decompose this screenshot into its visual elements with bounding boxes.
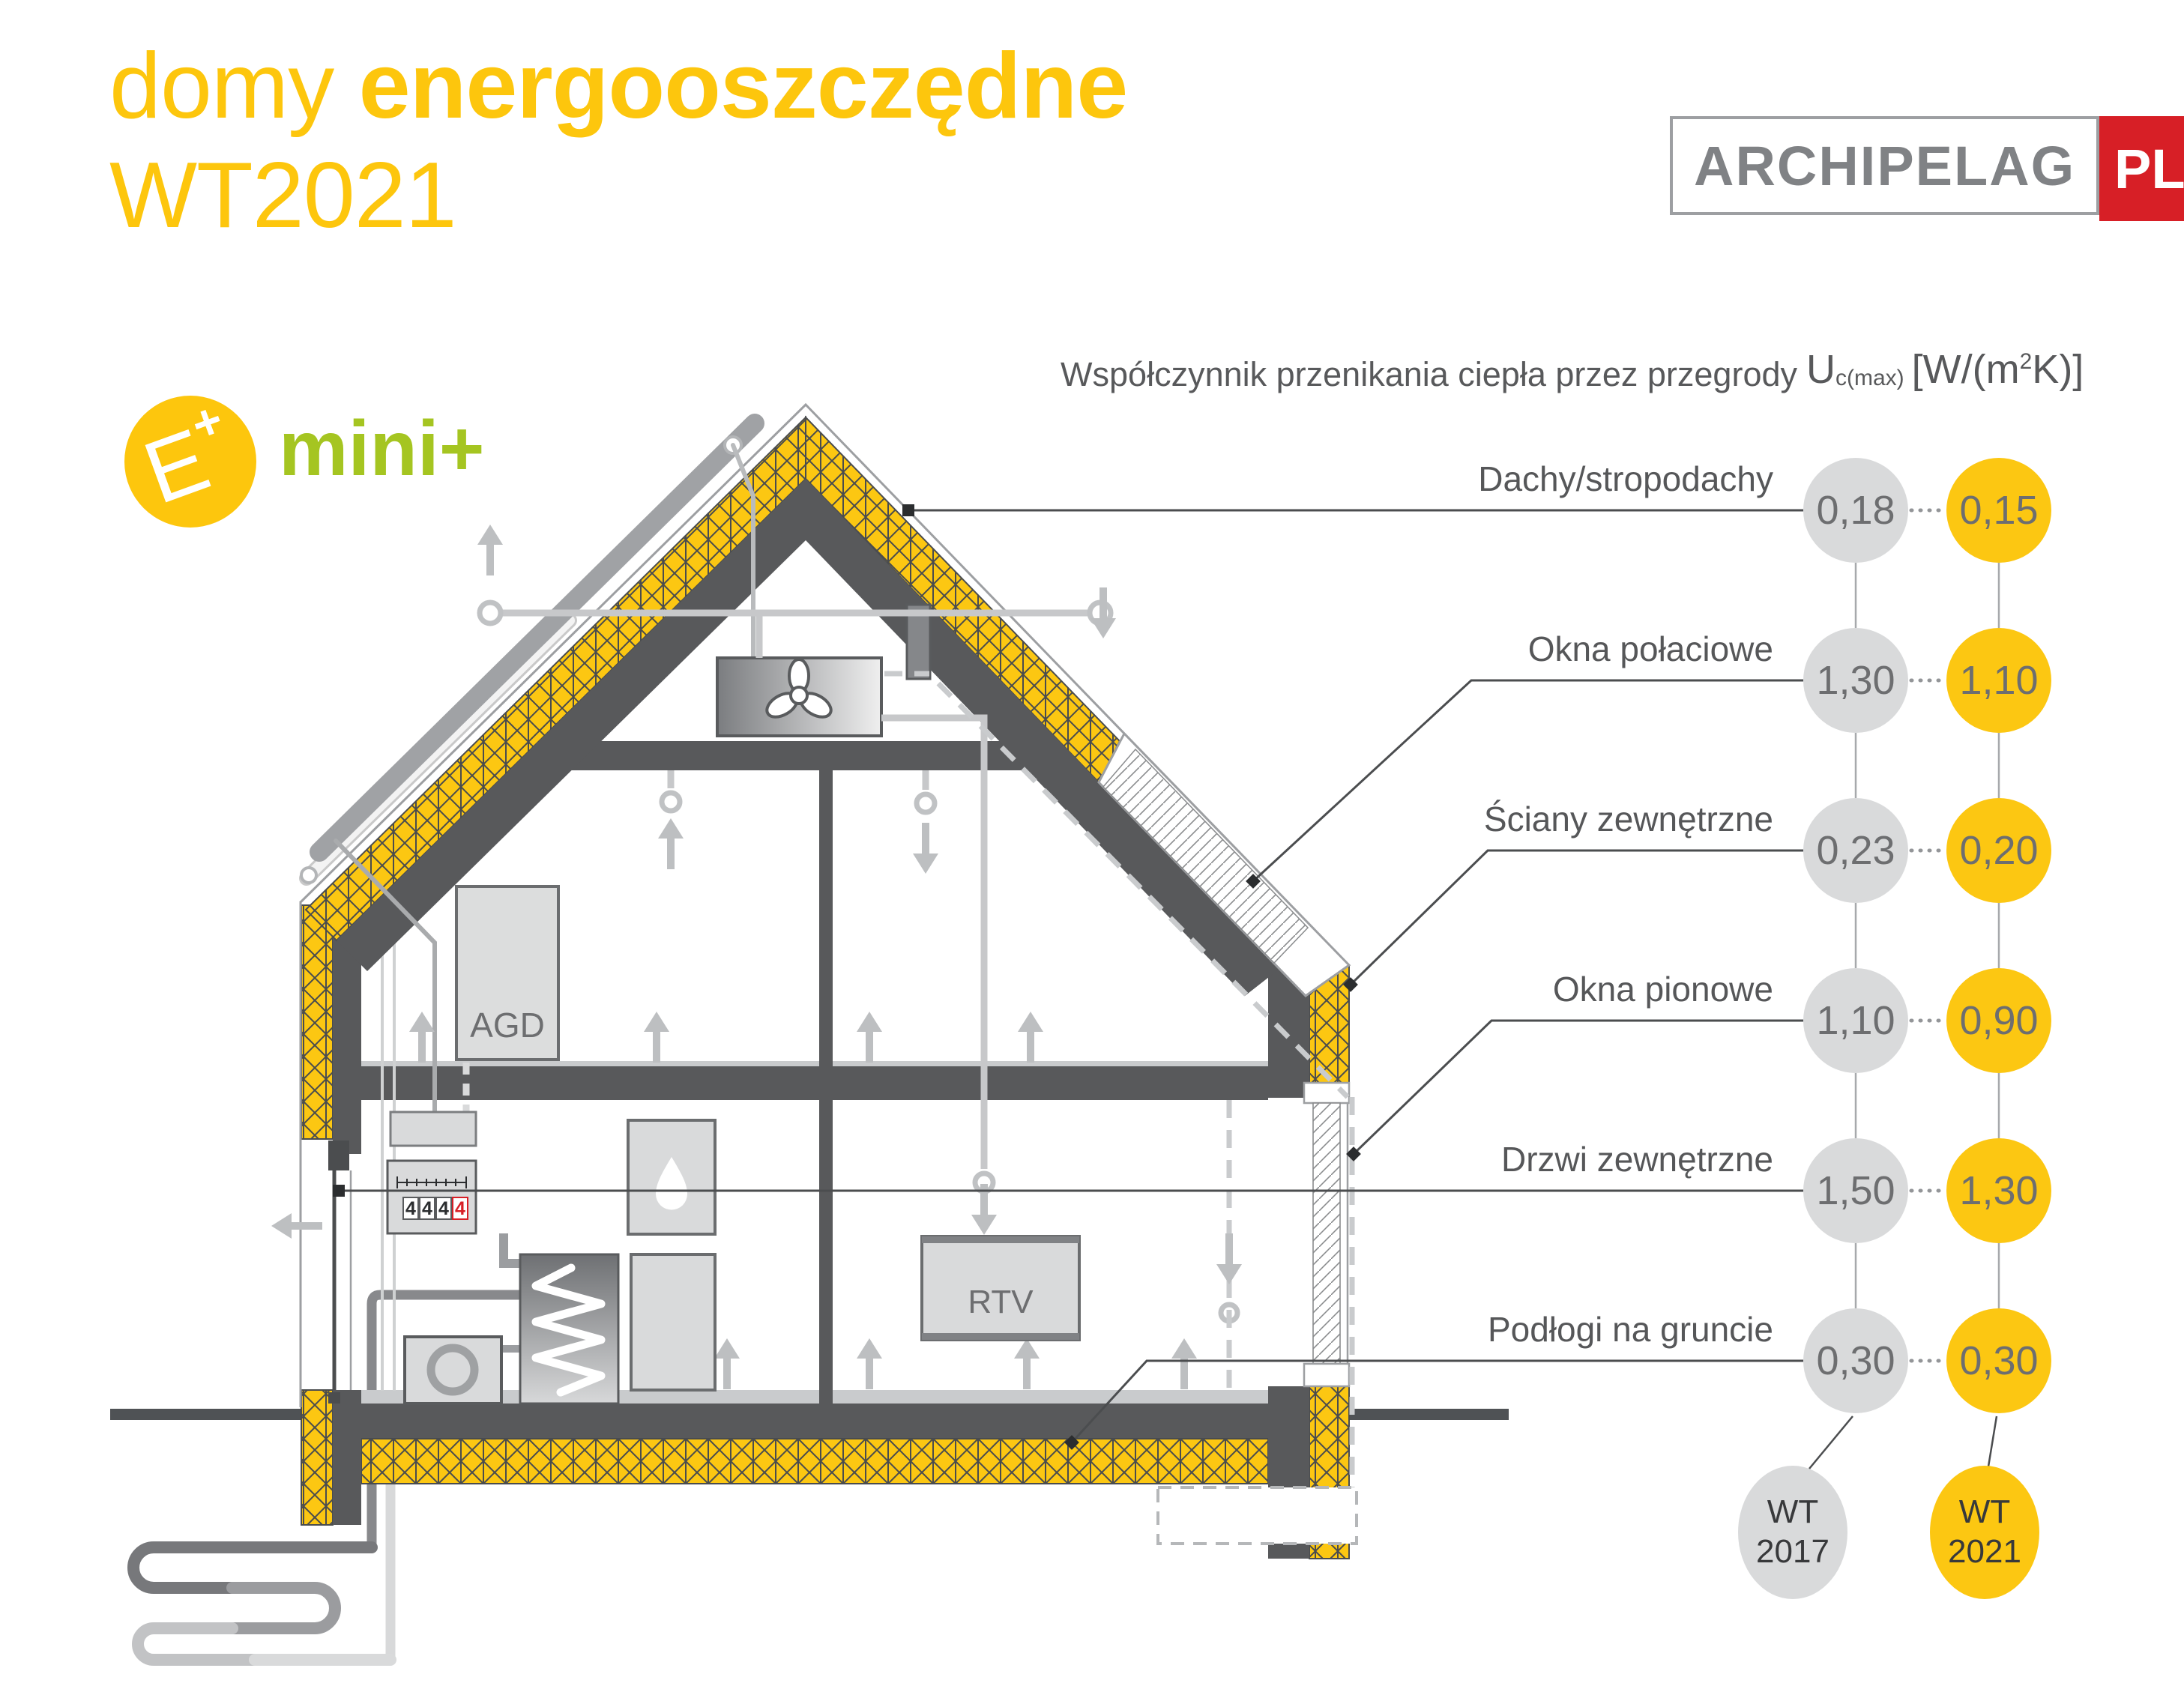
- interior-wall: [819, 770, 833, 1404]
- cabinet: [631, 1254, 715, 1390]
- value-wt2021-okna-polaciowe: 1,10: [1946, 628, 2051, 733]
- legend-wt2021: WT 2021: [1930, 1466, 2039, 1599]
- row-label-dachy: Dachy/stropodachy: [1478, 459, 1773, 498]
- row-label-drzwi: Drzwi zewnętrzne: [1501, 1140, 1773, 1179]
- e-plus-badge: E+: [124, 396, 256, 528]
- fuse-box: [390, 1112, 476, 1146]
- floor-insulation: [361, 1439, 1268, 1484]
- svg-text:4: 4: [455, 1198, 465, 1219]
- heat-recovery-unit: [717, 658, 881, 736]
- heat-pump-unit: [405, 1337, 501, 1404]
- ground-heat-exchanger: [1158, 1487, 1357, 1544]
- value-dotted-links: [1911, 510, 1946, 1361]
- value-wt2021-podlogi: 0,30: [1946, 1308, 2051, 1413]
- title-bold: energooszczędne: [359, 34, 1128, 138]
- svg-text:4: 4: [405, 1198, 416, 1219]
- header-label: Współczynnik przenikania ciepła przez pr…: [1061, 355, 1797, 394]
- water-heater: [628, 1120, 715, 1234]
- infographic-canvas: AGD RTV 4 4 4 4: [0, 0, 2184, 1695]
- u-symbol: U: [1806, 346, 1835, 393]
- value-wt2021-dachy: 0,15: [1946, 458, 2051, 563]
- value-wt2021-okna-pionowe: 0,90: [1946, 968, 2051, 1073]
- brand-name-box: ARCHIPELAG: [1670, 116, 2099, 215]
- energy-meter: 4 4 4 4: [387, 1161, 476, 1233]
- value-wt2021-drzwi: 1,30: [1946, 1138, 2051, 1243]
- title-light: domy: [109, 34, 334, 138]
- value-wt2017-drzwi: 1,50: [1803, 1138, 1908, 1243]
- archipelag-logo[interactable]: ARCHIPELAG PL: [1670, 116, 2184, 221]
- value-wt2017-dachy: 0,18: [1803, 458, 1908, 563]
- mini-plus-label: mini+: [279, 405, 485, 494]
- appliances: AGD RTV 4 4 4 4: [387, 886, 1079, 1404]
- agd-label: AGD: [470, 1006, 545, 1045]
- value-wt2021-sciany: 0,20: [1946, 798, 2051, 903]
- value-wt2017-okna-pionowe: 1,10: [1803, 968, 1908, 1073]
- value-wt2017-podlogi: 0,30: [1803, 1308, 1908, 1413]
- title-line2: WT2021: [109, 141, 1127, 250]
- wt-connectors: [1809, 1416, 1997, 1469]
- brand-name: ARCHIPELAG: [1694, 134, 2075, 198]
- legend-wt2017: WT 2017: [1738, 1466, 1847, 1599]
- unit: [W/(m2K)]: [1912, 346, 2084, 393]
- row-label-podlogi: Podłogi na gruncie: [1488, 1310, 1773, 1349]
- rtv-label: RTV: [968, 1284, 1034, 1320]
- svg-text:4: 4: [438, 1198, 449, 1219]
- value-wt2017-sciany: 0,23: [1803, 798, 1908, 903]
- brand-tld: PL: [2114, 137, 2184, 201]
- value-wt2017-okna-polaciowe: 1,30: [1803, 628, 1908, 733]
- buffer-tank: [520, 1254, 618, 1404]
- vertical-window: [1304, 1083, 1349, 1386]
- svg-text:4: 4: [422, 1198, 432, 1219]
- row-label-sciany: Ściany zewnętrzne: [1484, 800, 1773, 839]
- brand-tld-box: PL: [2099, 116, 2184, 221]
- header-formula: Uc(max) [W/(m2K)]: [1806, 346, 2084, 393]
- row-label-okna-polaciowe: Okna połaciowe: [1528, 629, 1773, 668]
- meter-counter: 4 4 4 4: [403, 1197, 468, 1219]
- page-title: domy energooszczędne WT2021: [109, 31, 1127, 251]
- u-subscript: c(max): [1835, 366, 1904, 391]
- row-label-okna-pionowe: Okna pionowe: [1553, 970, 1773, 1009]
